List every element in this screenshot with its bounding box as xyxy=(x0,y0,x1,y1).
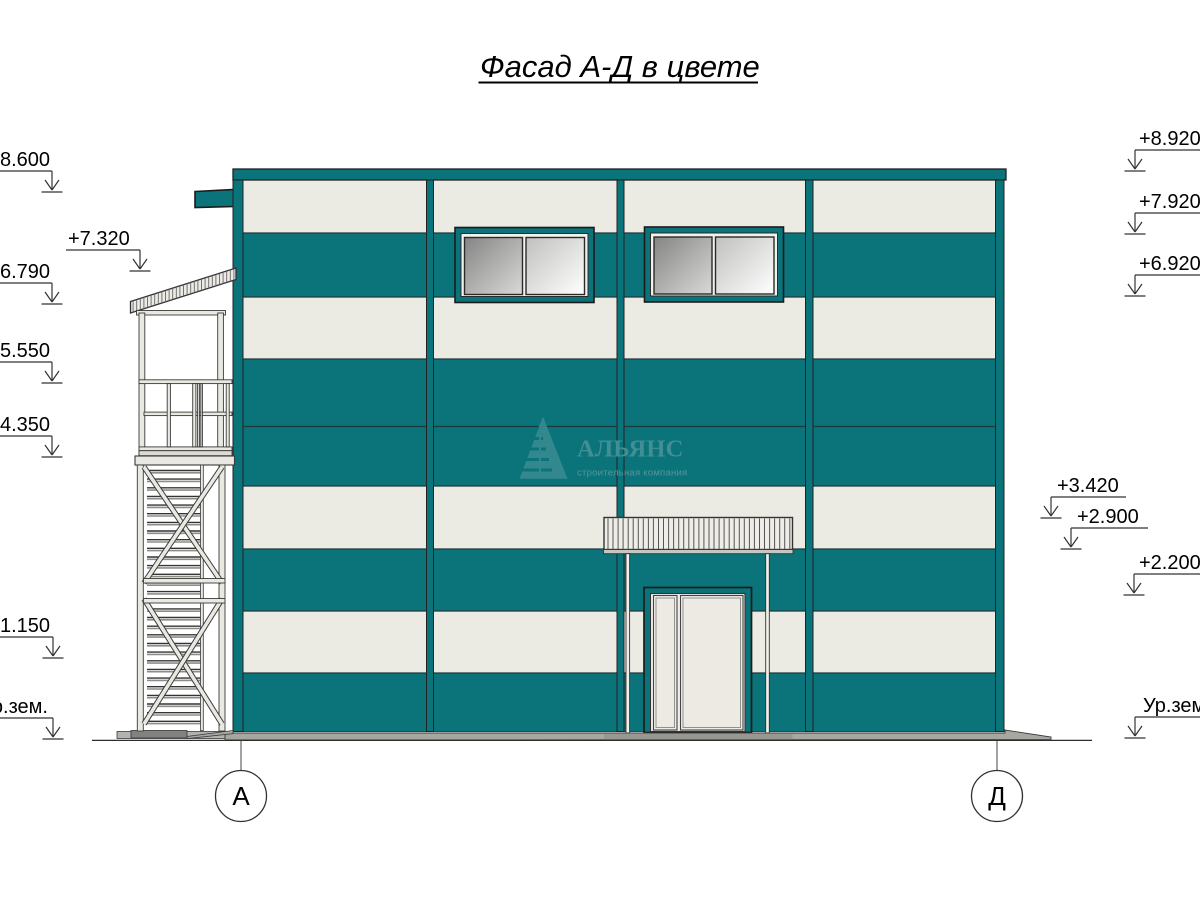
svg-text:+6.920: +6.920 xyxy=(1139,253,1200,275)
svg-text:+6.790: +6.790 xyxy=(0,261,50,283)
svg-text:Ур.зем.: Ур.зем. xyxy=(0,696,48,718)
svg-text:+2.900: +2.900 xyxy=(1077,506,1139,528)
svg-text:+7.920: +7.920 xyxy=(1139,191,1200,213)
svg-text:+3.420: +3.420 xyxy=(1057,475,1119,497)
svg-text:+5.550: +5.550 xyxy=(0,340,50,362)
svg-text:Ур.зем.: Ур.зем. xyxy=(1143,695,1200,717)
svg-text:Фасад А-Д в цвете: Фасад А-Д в цвете xyxy=(480,49,760,84)
svg-text:АЛЬЯНС: АЛЬЯНС xyxy=(577,436,684,463)
svg-text:+1.150: +1.150 xyxy=(0,615,50,637)
svg-text:Д: Д xyxy=(988,781,1006,811)
svg-text:строительная компания: строительная компания xyxy=(577,468,687,479)
svg-text:+8.920: +8.920 xyxy=(1139,128,1200,150)
svg-text:А: А xyxy=(232,781,250,811)
svg-text:+4.350: +4.350 xyxy=(0,414,50,436)
svg-text:+8.600: +8.600 xyxy=(0,149,50,171)
svg-text:+2.200: +2.200 xyxy=(1139,552,1200,574)
svg-text:+7.320: +7.320 xyxy=(68,228,130,250)
